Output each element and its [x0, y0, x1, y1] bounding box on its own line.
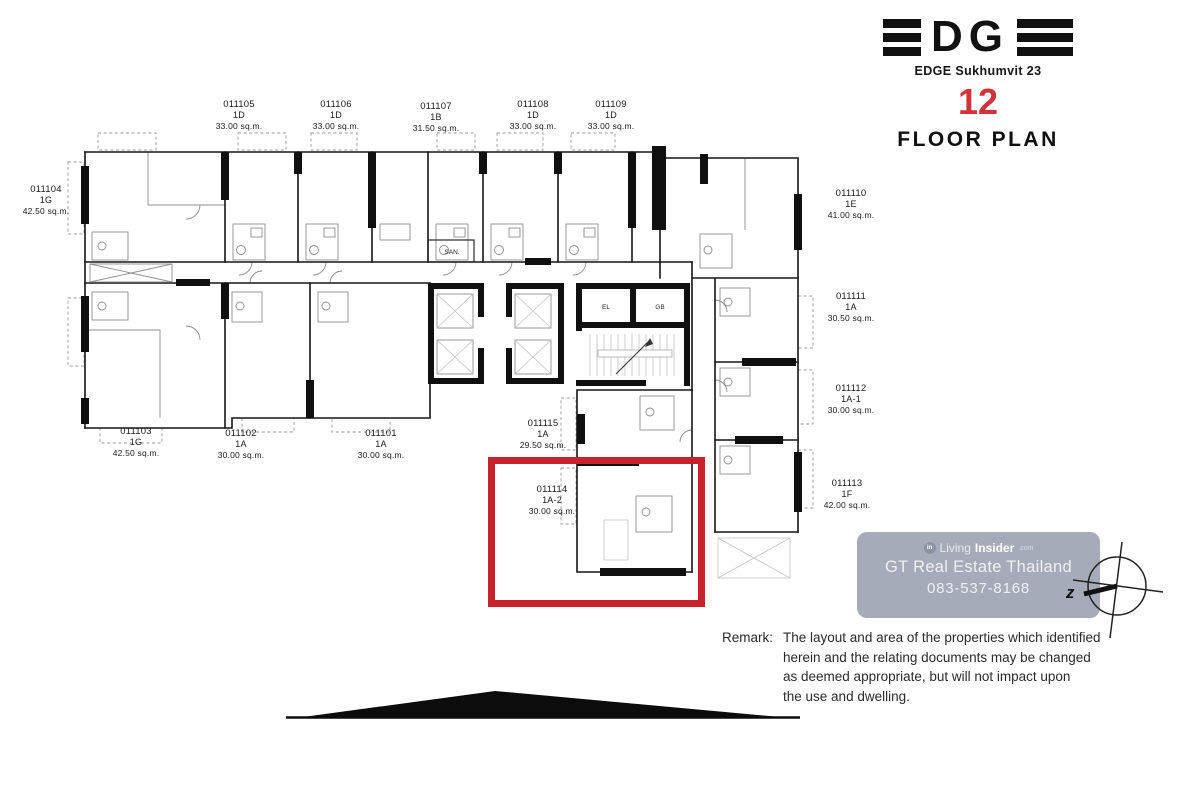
unit-area: 42.50 sq.m.: [23, 206, 70, 217]
unit-id: 011113: [824, 478, 871, 489]
unit-area: 33.00 sq.m.: [588, 121, 635, 132]
unit-type: 1D: [588, 110, 635, 121]
page-title: FLOOR PLAN: [880, 128, 1076, 152]
unit-type: 1F: [824, 489, 871, 500]
unit-type: 1A: [358, 439, 405, 450]
edge-logo: DG: [880, 14, 1076, 60]
elevator-core-1: [428, 283, 484, 384]
unit-id: 011112: [828, 383, 875, 394]
stair-core: [576, 283, 690, 386]
unit-label-011106: 011106 1D 33.00 sq.m.: [313, 99, 360, 132]
unit-id: 011103: [113, 426, 160, 437]
unit-area: 30.00 sq.m.: [218, 450, 265, 461]
compass-icon: z: [1064, 534, 1170, 649]
unit-id: 011106: [313, 99, 360, 110]
unit-type: 1A: [218, 439, 265, 450]
unit-label-011101: 011101 1A 30.00 sq.m.: [358, 428, 405, 461]
unit-type: 1D: [510, 110, 557, 121]
unit-area: 30.00 sq.m.: [358, 450, 405, 461]
unit-label-011109: 011109 1D 33.00 sq.m.: [588, 99, 635, 132]
unit-area: 42.00 sq.m.: [824, 500, 871, 511]
unit-type: 1D: [313, 110, 360, 121]
unit-area: 42.50 sq.m.: [113, 448, 160, 459]
remark-text: The layout and area of the properties wh…: [783, 628, 1100, 706]
unit-label-011108: 011108 1D 33.00 sq.m.: [510, 99, 557, 132]
unit-label-011105: 011105 1D 33.00 sq.m.: [216, 99, 263, 132]
remark-block: Remark: The layout and area of the prope…: [722, 628, 1100, 706]
unit-type: 1A-1: [828, 394, 875, 405]
unit-area: 41.00 sq.m.: [828, 210, 875, 221]
unit-id: 011115: [520, 418, 567, 429]
unit-id: 011102: [218, 428, 265, 439]
unit-area: 33.00 sq.m.: [510, 121, 557, 132]
unit-label-011110: 011110 1E 41.00 sq.m.: [828, 188, 875, 221]
logo-letters: DG: [931, 15, 1009, 59]
unit-id: 011104: [23, 184, 70, 195]
unit-label-011113: 011113 1F 42.00 sq.m.: [824, 478, 871, 511]
remark-line: The layout and area of the properties wh…: [783, 628, 1100, 648]
unit-type: 1A-2: [529, 495, 576, 506]
unit-area: 33.00 sq.m.: [216, 121, 263, 132]
unit-area: 33.00 sq.m.: [313, 121, 360, 132]
unit-area: 30.00 sq.m.: [529, 506, 576, 517]
compass-north-letter: z: [1065, 583, 1075, 602]
unit-id: 011107: [413, 101, 460, 112]
unit-area: 30.50 sq.m.: [828, 313, 875, 324]
living-insider-logo-icon: in: [924, 542, 936, 554]
unit-id: 011105: [216, 99, 263, 110]
unit-label-011115: 011115 1A 29.50 sq.m.: [520, 418, 567, 451]
unit-label-011114: 011114 1A-2 30.00 sq.m.: [529, 484, 576, 517]
unit-type: 1A: [828, 302, 875, 313]
remark-label: Remark:: [722, 628, 773, 706]
unit-id: 011108: [510, 99, 557, 110]
logo-e-bars-right-icon: [1017, 19, 1073, 56]
unit-area: 31.50 sq.m.: [413, 123, 460, 134]
garbage-room-label: GB: [655, 304, 664, 311]
unit-type: 1D: [216, 110, 263, 121]
remark-line: the use and dwelling.: [783, 687, 1100, 707]
unit-id: 011101: [358, 428, 405, 439]
unit-type: 1G: [23, 195, 70, 206]
project-name: EDGE Sukhumvit 23: [880, 64, 1076, 78]
unit-area: 29.50 sq.m.: [520, 440, 567, 451]
elevator-core-2: [506, 283, 564, 384]
unit-label-011112: 011112 1A-1 30.00 sq.m.: [828, 383, 875, 416]
unit-type: 1G: [113, 437, 160, 448]
unit-label-011111: 011111 1A 30.50 sq.m.: [828, 291, 875, 324]
unit-label-011104: 011104 1G 42.50 sq.m.: [23, 184, 70, 217]
remark-line: herein and the relating documents may be…: [783, 648, 1100, 668]
unit-id: 011111: [828, 291, 875, 302]
unit-id: 011110: [828, 188, 875, 199]
unit-type: 1A: [520, 429, 567, 440]
floor-plan-page: SAN. EL GB 011101 1A 30.00 sq.m. 011102 …: [0, 0, 1200, 800]
unit-type: 1B: [413, 112, 460, 123]
brand-tld: .com: [1018, 545, 1033, 552]
unit-label-011102: 011102 1A 30.00 sq.m.: [218, 428, 265, 461]
unit-area: 30.00 sq.m.: [828, 405, 875, 416]
unit-label-011107: 011107 1B 31.50 sq.m.: [413, 101, 460, 134]
unit-label-011103: 011103 1G 42.50 sq.m.: [113, 426, 160, 459]
project-header: DG EDGE Sukhumvit 23 12 FLOOR PLAN: [880, 14, 1076, 152]
floor-number: 12: [880, 84, 1076, 120]
remark-line: as deemed appropriate, but will not impa…: [783, 667, 1100, 687]
unit-id: 011109: [588, 99, 635, 110]
logo-e-bars-left-icon: [883, 19, 921, 56]
unit-type: 1E: [828, 199, 875, 210]
elevator-room-label: EL: [602, 304, 610, 311]
brand-living: Living: [940, 541, 971, 555]
san-room-label: SAN.: [444, 249, 459, 256]
unit-id: 011114: [529, 484, 576, 495]
brand-insider: Insider: [975, 541, 1014, 555]
corridor-cross-box: [90, 264, 172, 282]
